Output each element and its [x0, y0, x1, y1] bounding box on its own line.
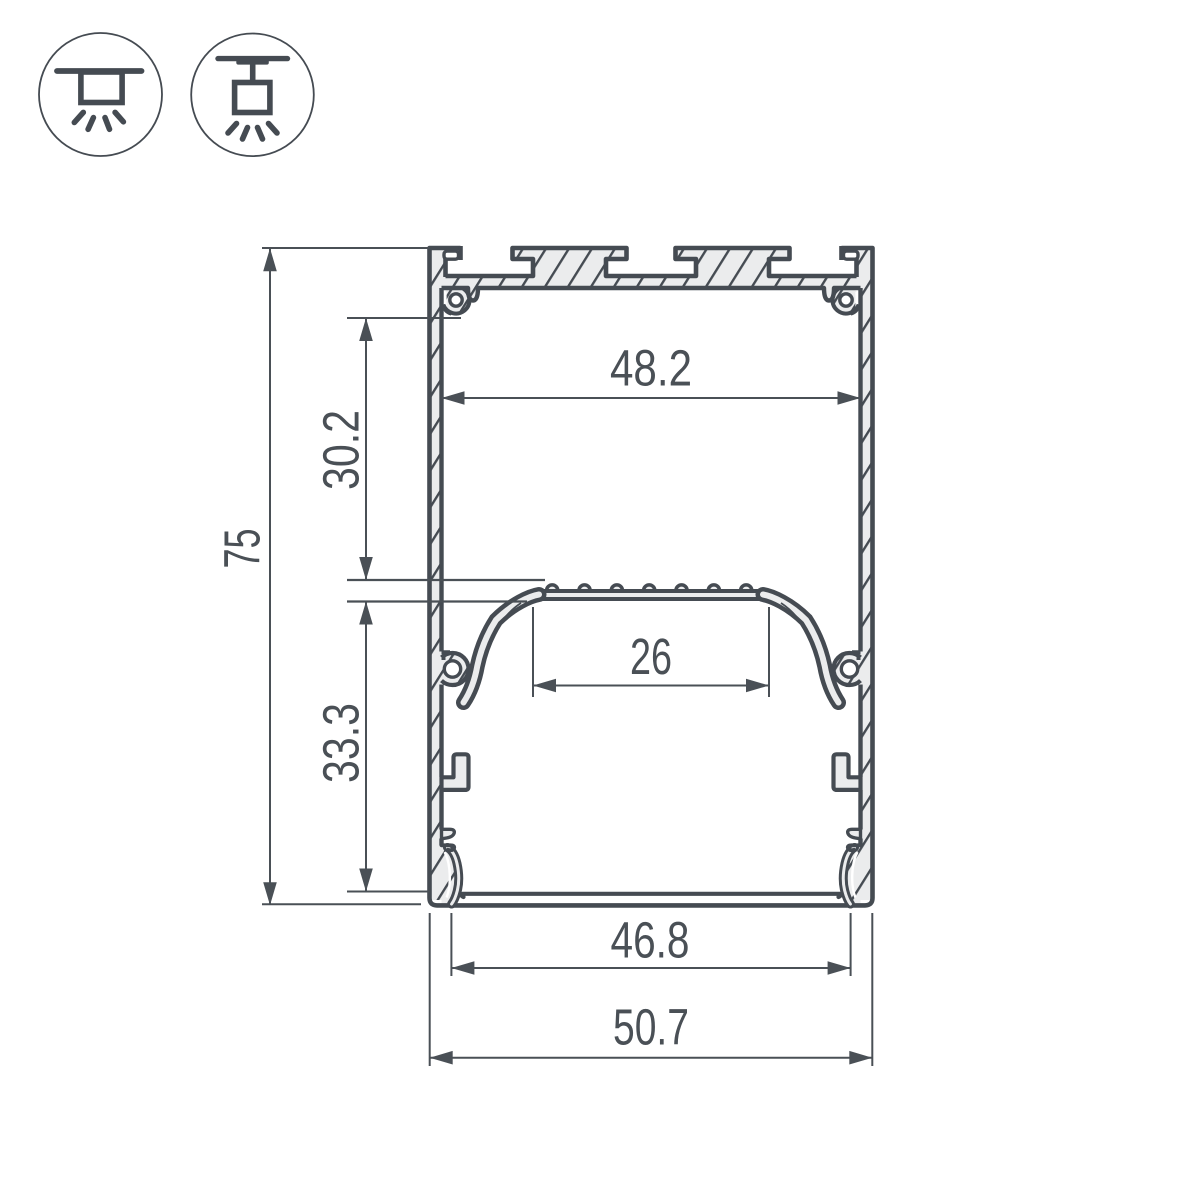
svg-text:30.2: 30.2: [313, 410, 370, 490]
svg-text:26: 26: [630, 628, 672, 685]
svg-text:75: 75: [214, 529, 271, 569]
svg-text:50.7: 50.7: [613, 999, 689, 1056]
svg-text:46.8: 46.8: [611, 912, 690, 969]
svg-text:48.2: 48.2: [610, 340, 692, 397]
svg-text:33.3: 33.3: [313, 703, 370, 783]
